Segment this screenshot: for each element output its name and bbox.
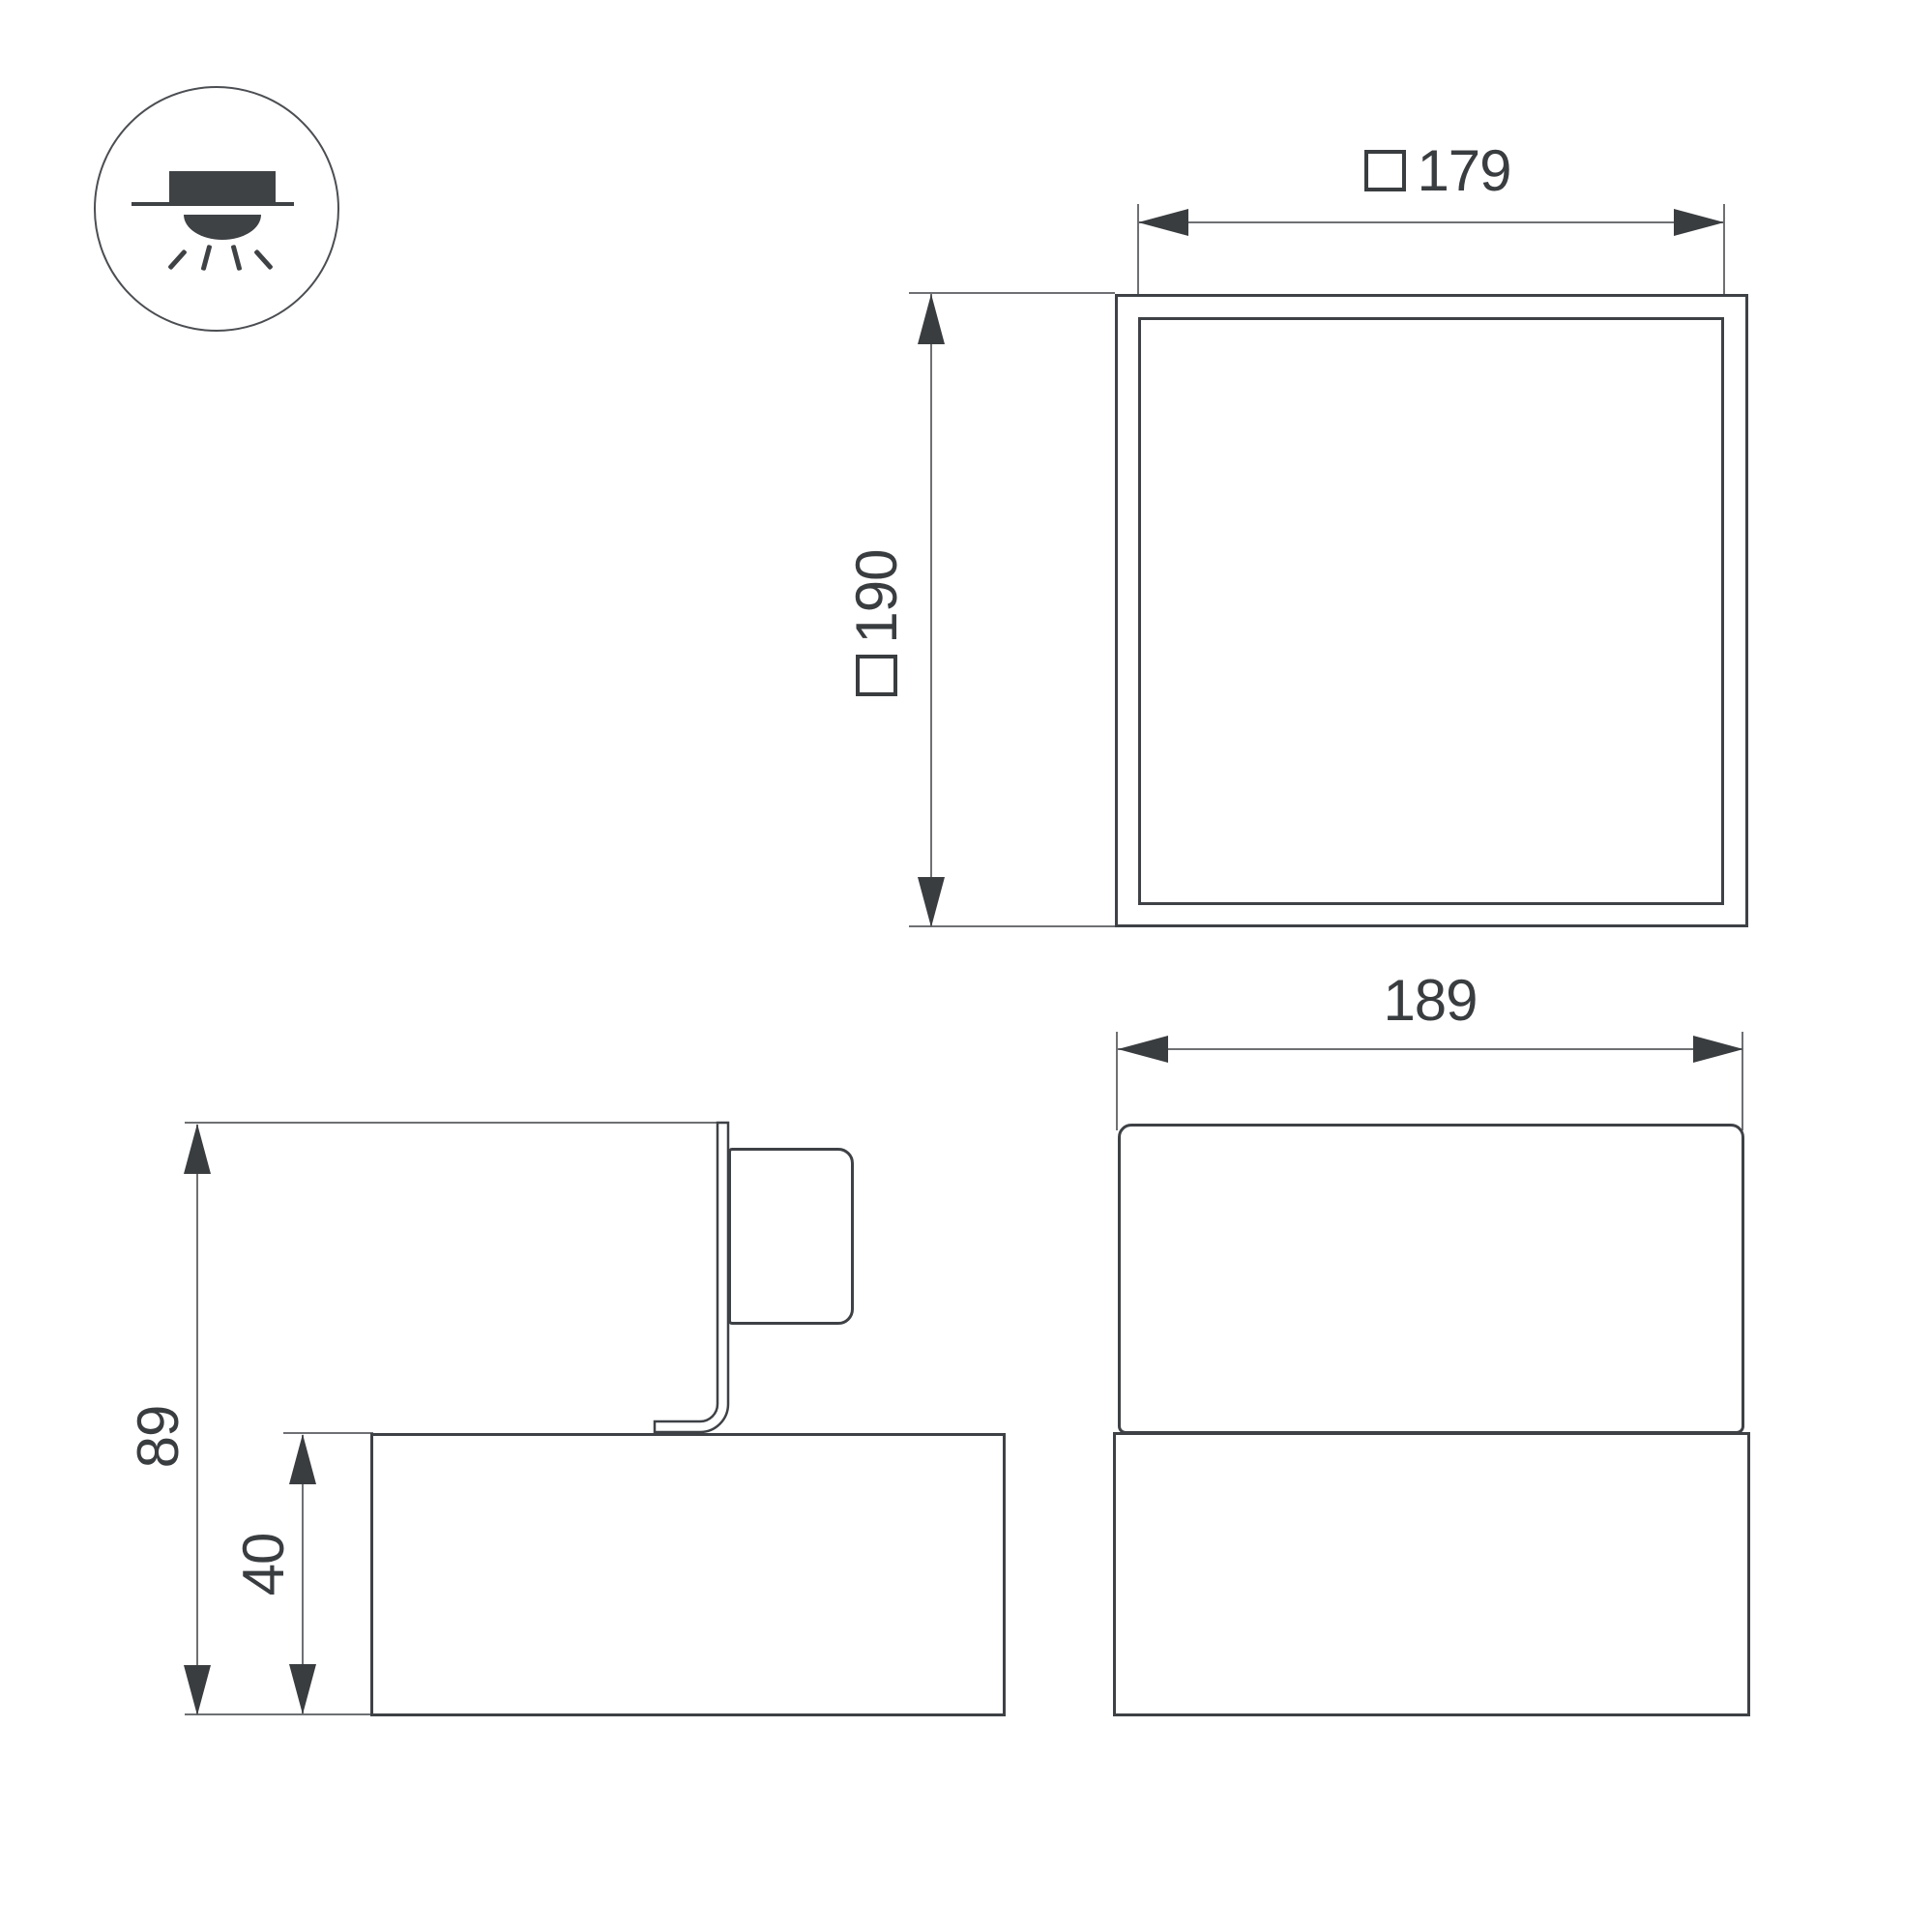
front-view-base-box [1113, 1432, 1750, 1716]
dimension-drawing: 179 190 89 40 [0, 0, 1932, 1932]
dimension-value: 189 [1383, 967, 1477, 1034]
arrowhead [1118, 1036, 1168, 1063]
driver-box [728, 1148, 854, 1325]
dimension-line-189 [1118, 1048, 1743, 1050]
arrowhead [1693, 1036, 1743, 1063]
front-view-upper-box [1118, 1124, 1744, 1434]
dimension-label-width: 189 [1333, 966, 1527, 1034]
